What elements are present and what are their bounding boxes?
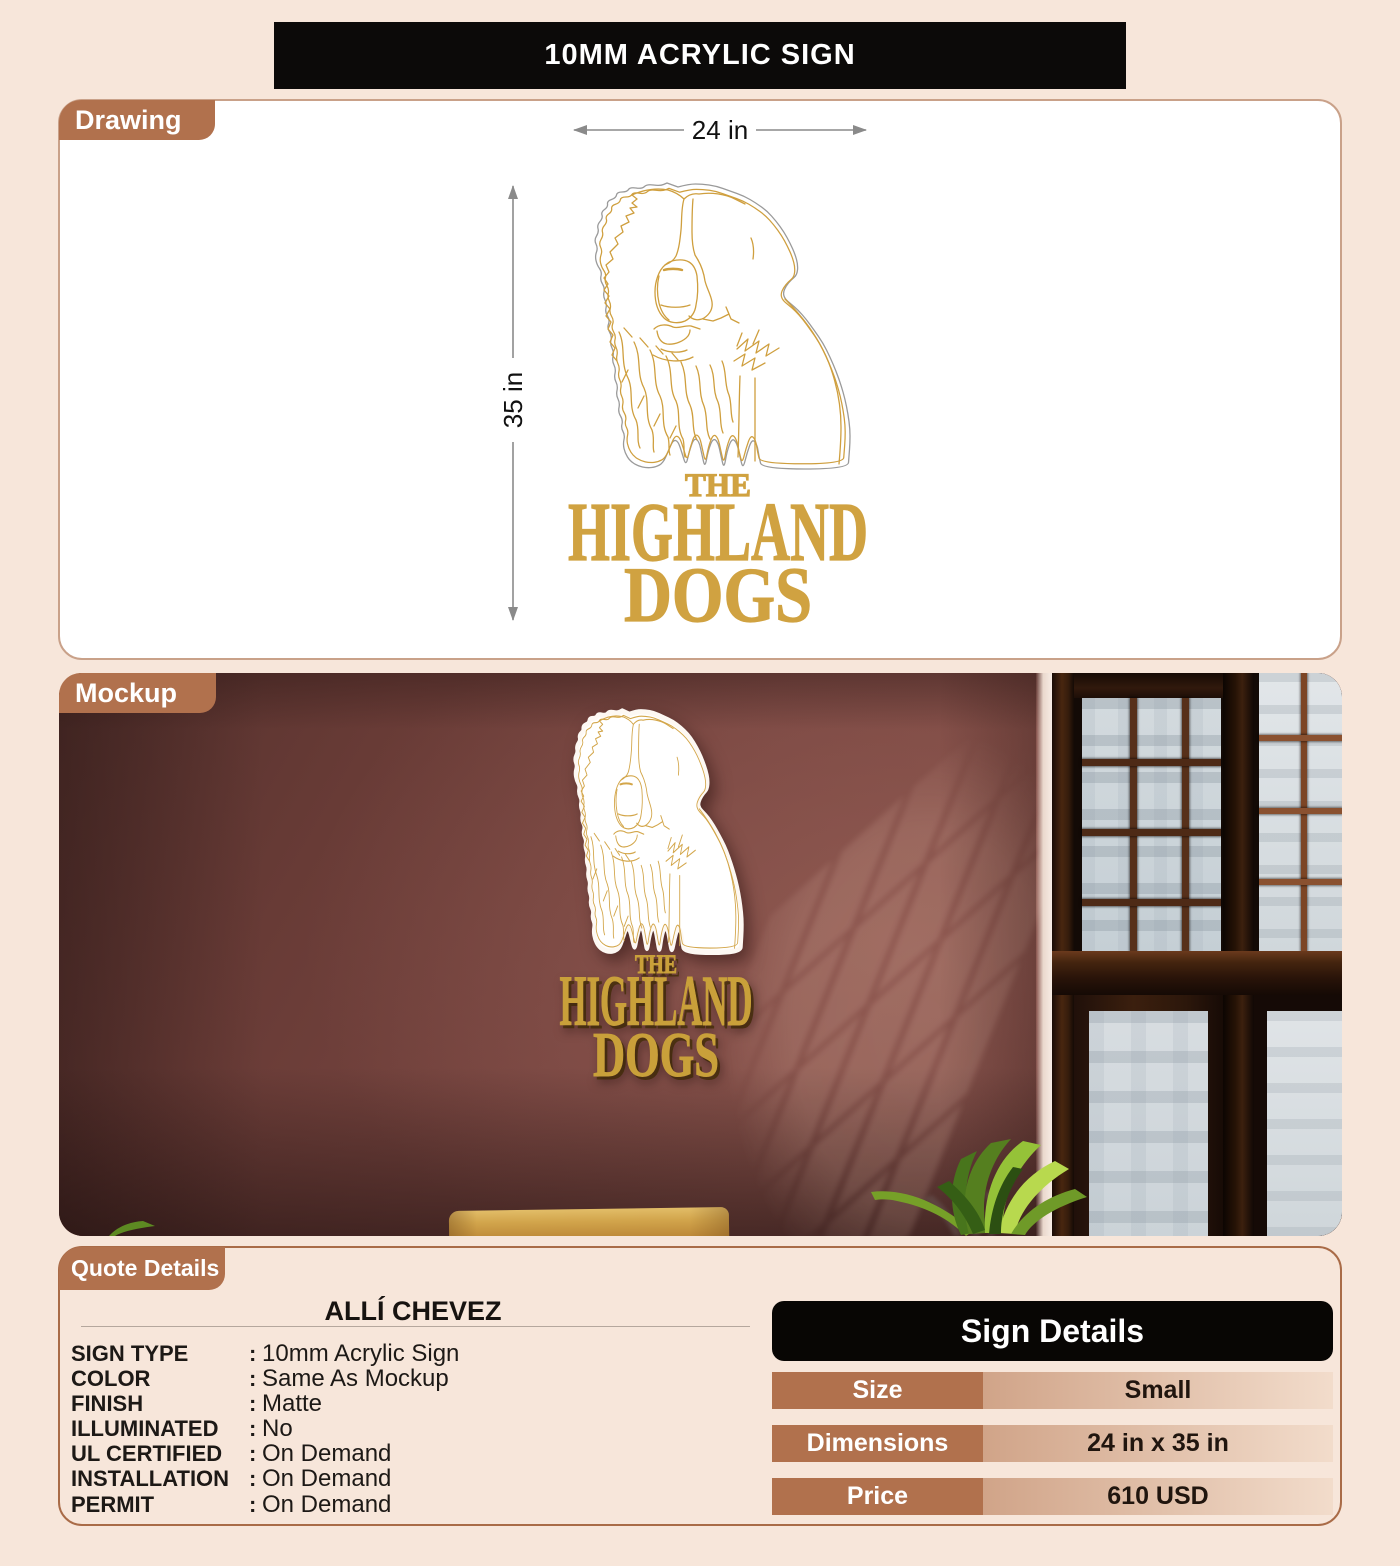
svg-text:DOGS: DOGS — [624, 551, 812, 636]
svg-text:24 in: 24 in — [692, 115, 748, 145]
svg-text:DOGS: DOGS — [593, 1019, 719, 1090]
svg-text:35 in: 35 in — [498, 372, 528, 428]
